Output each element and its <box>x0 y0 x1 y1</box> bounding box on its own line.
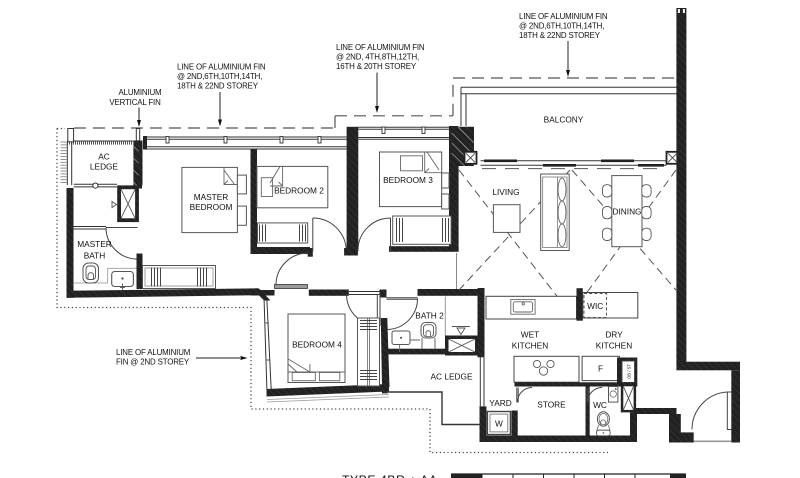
svg-text:BEDROOM 3: BEDROOM 3 <box>383 175 433 185</box>
svg-text:KITCHEN: KITCHEN <box>512 341 548 351</box>
svg-text:W: W <box>495 419 503 429</box>
svg-text:18TH & 22ND STOREY: 18TH & 22ND STOREY <box>519 31 601 40</box>
svg-text:TYPE 4BR + AA: TYPE 4BR + AA <box>342 473 438 478</box>
svg-text:YARD: YARD <box>489 398 511 408</box>
svg-text:OB / ST: OB / ST <box>627 364 632 379</box>
svg-text:BEDROOM: BEDROOM <box>190 202 233 212</box>
svg-text:LINE OF ALUMINIUM: LINE OF ALUMINIUM <box>116 348 190 357</box>
svg-text:LINE OF ALUMINIUM FIN: LINE OF ALUMINIUM FIN <box>177 62 266 71</box>
svg-text:BEDROOM 4: BEDROOM 4 <box>292 340 342 350</box>
svg-text:WIC: WIC <box>587 301 603 311</box>
svg-text:DRY: DRY <box>605 330 623 340</box>
svg-text:@ 2ND, 4TH,8TH,12TH,: @ 2ND, 4TH,8TH,12TH, <box>336 53 419 62</box>
svg-text:VERTICAL FIN: VERTICAL FIN <box>109 98 161 107</box>
svg-text:MASTER: MASTER <box>194 192 229 202</box>
svg-text:F: F <box>598 364 603 374</box>
svg-text:BEDROOM 2: BEDROOM 2 <box>274 186 324 196</box>
svg-text:FIN @ 2ND STOREY: FIN @ 2ND STOREY <box>116 358 190 367</box>
svg-text:BALCONY: BALCONY <box>544 115 584 125</box>
svg-text:18TH & 22ND STOREY: 18TH & 22ND STOREY <box>177 82 259 91</box>
svg-text:WET: WET <box>521 330 539 340</box>
svg-text:16TH & 20TH STOREY: 16TH & 20TH STOREY <box>336 62 417 71</box>
svg-text:@ 2ND,6TH,10TH,14TH,: @ 2ND,6TH,10TH,14TH, <box>177 72 262 81</box>
svg-text:@ 2ND,6TH,10TH,14TH,: @ 2ND,6TH,10TH,14TH, <box>519 22 604 31</box>
svg-text:KITCHEN: KITCHEN <box>596 341 632 351</box>
svg-text:STORE: STORE <box>537 400 566 410</box>
svg-text:LINE OF ALUMINIUM FIN: LINE OF ALUMINIUM FIN <box>519 12 608 21</box>
svg-text:BATH: BATH <box>84 250 106 260</box>
svg-text:WC: WC <box>593 400 607 410</box>
svg-text:BATH 2: BATH 2 <box>415 311 444 321</box>
svg-text:MASTER: MASTER <box>77 239 112 249</box>
svg-text:DINING: DINING <box>612 207 641 217</box>
svg-text:LINE OF ALUMINIUM FIN: LINE OF ALUMINIUM FIN <box>336 43 425 52</box>
svg-text:AC: AC <box>98 152 110 162</box>
svg-text:ALUMINIUM: ALUMINIUM <box>119 88 162 97</box>
svg-text:LEDGE: LEDGE <box>90 162 119 172</box>
svg-text:AC LEDGE: AC LEDGE <box>431 372 473 382</box>
svg-text:LIVING: LIVING <box>492 187 519 197</box>
